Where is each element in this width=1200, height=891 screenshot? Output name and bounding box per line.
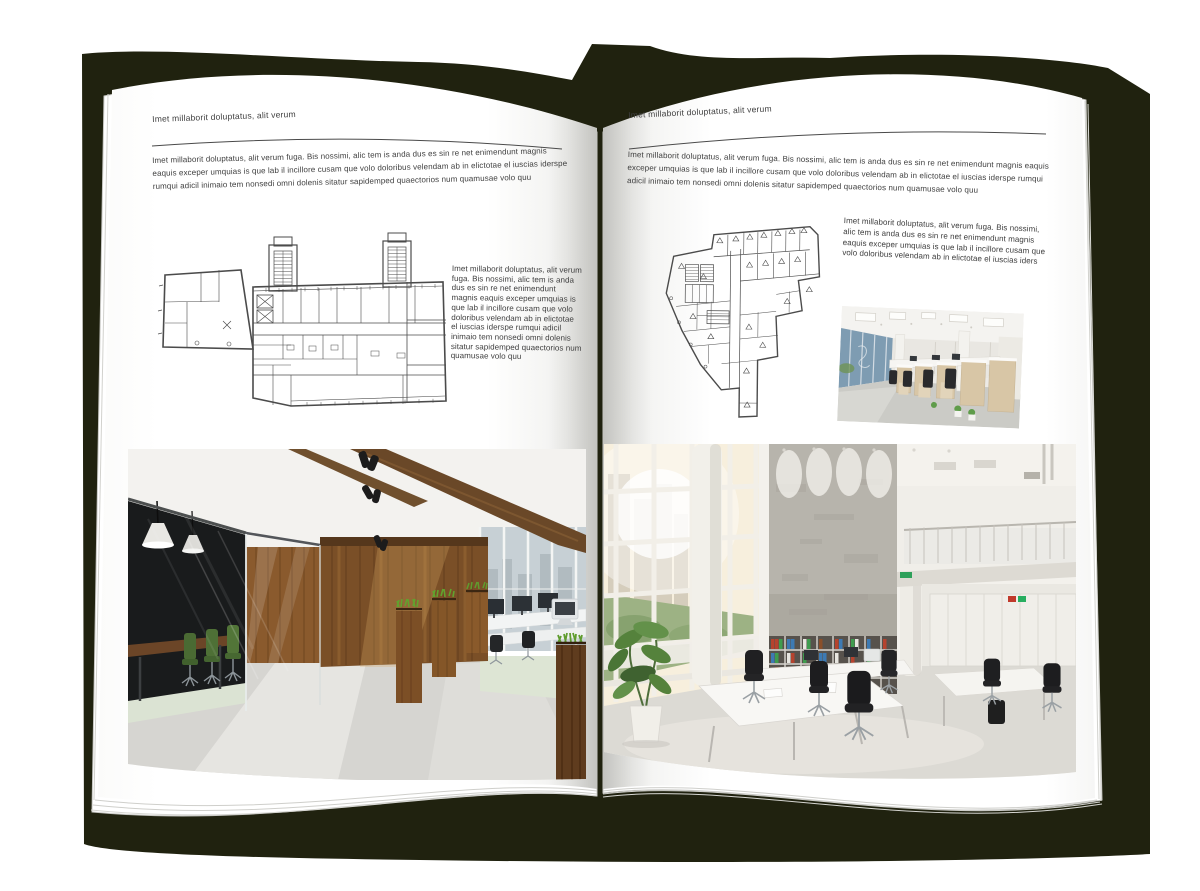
right-page-side-text: Imet millaborit doluptatus, alit verum f… (842, 216, 1048, 268)
wood-wall-left (246, 547, 320, 663)
plan-left-wing (158, 270, 253, 349)
blue-glass-wall (838, 328, 893, 390)
left-page-side-text: Imet millaborit doluptatus, alit verum f… (451, 264, 583, 363)
right-floor-plan (650, 218, 830, 422)
exit-sign-icon (900, 572, 912, 578)
concrete-wall (769, 444, 897, 636)
window-wall-left (604, 444, 759, 706)
mezzanine (897, 444, 1076, 587)
magazine-spread-mockup: Imet millaborit doluptatus, alit verum I… (0, 0, 1200, 891)
fire-sign-icon (1008, 596, 1016, 602)
plan-stair-tower-a (269, 237, 297, 291)
plan-main-block (253, 282, 446, 406)
right-small-photo (837, 306, 1024, 429)
plan-stair-tower-b (383, 233, 411, 287)
right-office-photo (604, 444, 1076, 779)
waste-bin (988, 700, 1005, 724)
meeting-room (128, 501, 253, 723)
plan-door-symbols (677, 226, 813, 407)
cabinet-wall (900, 572, 1076, 666)
plan-outline (665, 225, 820, 418)
left-floor-plan (157, 225, 449, 415)
left-office-photo (128, 449, 586, 780)
aid-sign-icon (1018, 596, 1026, 602)
